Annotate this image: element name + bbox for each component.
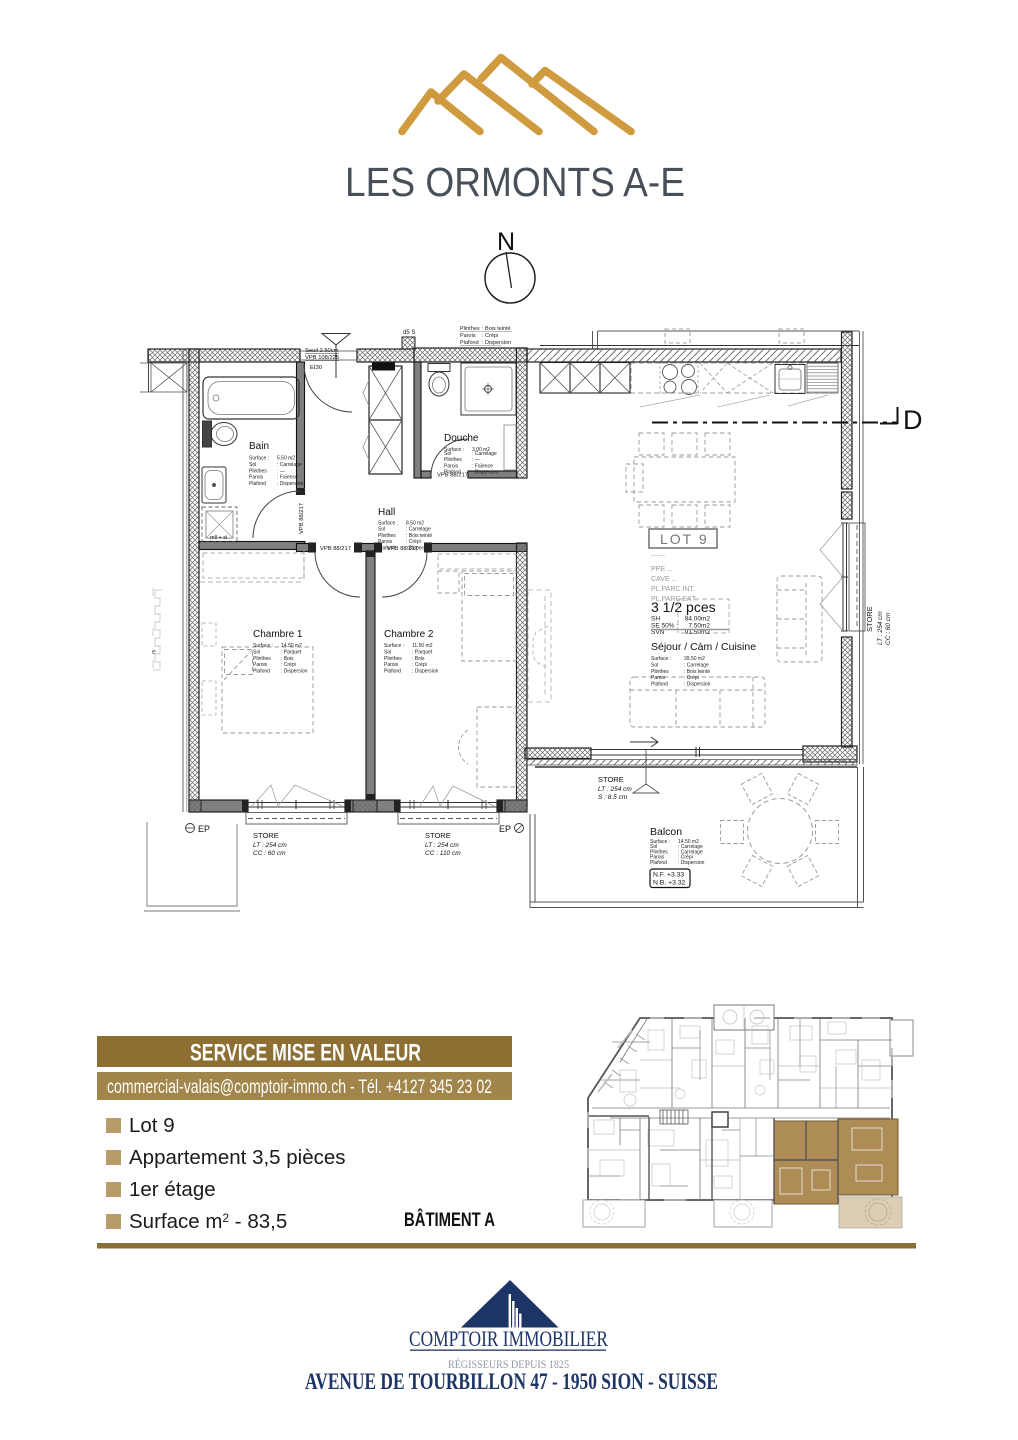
svg-text:Plinthes: Plinthes (253, 656, 271, 662)
svg-text:Plafond: Plafond (384, 669, 401, 675)
svg-text:N.F. +3.33: N.F. +3.33 (653, 872, 684, 879)
svg-text:Plinthes: Plinthes (460, 326, 480, 332)
svg-text:: Bois teinté: : Bois teinté (482, 326, 511, 332)
svg-text:Plinthes: Plinthes (378, 533, 396, 539)
svg-text:Surface :: Surface : (384, 643, 404, 649)
svg-text:: Bois: : Bois (281, 656, 294, 662)
svg-text:commercial-valais@comptoir-imm: commercial-valais@comptoir-immo.ch - Tél… (107, 1076, 492, 1098)
svg-text:COMPTOIR IMMOBILIER: COMPTOIR IMMOBILIER (409, 1326, 608, 1351)
svg-text:: Carrelage: : Carrelage (277, 462, 302, 468)
svg-text:LT : 254 cm: LT : 254 cm (598, 786, 632, 793)
svg-text:e: e (152, 649, 156, 656)
svg-text:Surface :: Surface : (378, 521, 398, 527)
svg-text:Parois: Parois (384, 662, 399, 668)
svg-text:: Carrelage: : Carrelage (406, 527, 431, 533)
svg-text:: Bois: : Bois (412, 656, 425, 662)
svg-text:PL.PARC.INT.: PL.PARC.INT. (651, 586, 695, 593)
svg-text:: Parquet: : Parquet (412, 649, 433, 655)
svg-text:Parois: Parois (651, 675, 666, 681)
svg-text:: Crépi: : Crépi (281, 662, 296, 668)
svg-text:N: N (497, 228, 515, 256)
svg-text:EP: EP (198, 824, 210, 834)
svg-text:: Crépi: : Crépi (412, 662, 427, 668)
svg-text:Sol: Sol (384, 649, 391, 655)
svg-text:Chambre 2: Chambre 2 (384, 629, 434, 640)
svg-text:1er étage: 1er étage (129, 1178, 216, 1201)
svg-text:: —: : — (277, 468, 285, 474)
svg-text:Douche: Douche (444, 433, 479, 444)
svg-text:: Dispersion: : Dispersion (277, 481, 304, 487)
svg-text:: Dispersion: : Dispersion (472, 469, 499, 475)
svg-text:------: ------ (651, 553, 666, 560)
svg-text:LT : 254 cm: LT : 254 cm (425, 842, 459, 849)
svg-text:: —: : — (472, 457, 480, 463)
svg-text:: Crépi: : Crépi (406, 539, 421, 545)
svg-text:STORE: STORE (425, 831, 451, 840)
svg-text:LT : 254 cm: LT : 254 cm (253, 842, 287, 849)
svg-text:Plafond: Plafond (650, 860, 667, 866)
svg-text:CC : 60 cm: CC : 60 cm (253, 850, 286, 857)
svg-text:8.50 m2: 8.50 m2 (406, 521, 424, 527)
svg-text:N.B. +3.32: N.B. +3.32 (653, 880, 686, 887)
svg-text:: Dispersion: : Dispersion (684, 682, 711, 688)
svg-text:BÂTIMENT A: BÂTIMENT A (404, 1209, 495, 1231)
svg-text:5.50 m2: 5.50 m2 (277, 456, 295, 462)
svg-text:Plinthes: Plinthes (249, 468, 267, 474)
svg-text:Sol: Sol (253, 649, 260, 655)
svg-text:Plafond: Plafond (253, 669, 270, 675)
svg-text:EP: EP (499, 824, 511, 834)
svg-text:Parois: Parois (253, 662, 268, 668)
svg-text:: Crépi: : Crépi (684, 675, 699, 681)
svg-text:Plinthes: Plinthes (444, 457, 462, 463)
svg-text:Parois: Parois (460, 333, 476, 339)
svg-text:Plafond: Plafond (460, 340, 479, 346)
svg-text:: Dispersion: : Dispersion (482, 340, 511, 346)
svg-text:Parois: Parois (249, 475, 264, 481)
svg-text:LOT 9: LOT 9 (660, 531, 709, 547)
svg-text:LT : 254 cm: LT : 254 cm (877, 611, 884, 645)
svg-text:Parois: Parois (444, 463, 459, 469)
svg-text:: Dispersion: : Dispersion (281, 669, 308, 675)
svg-text:mll + sl: mll + sl (210, 535, 227, 541)
svg-text:Sol: Sol (444, 451, 451, 457)
svg-text:STORE: STORE (598, 775, 624, 784)
svg-text:Séjour / Càm / Cuisine: Séjour / Càm / Cuisine (651, 641, 756, 653)
svg-text:Plafond: Plafond (651, 682, 668, 688)
svg-text:Surface :: Surface : (249, 456, 269, 462)
svg-text:: Crépi: : Crépi (482, 333, 498, 339)
svg-text:Plafond: Plafond (249, 481, 266, 487)
svg-text:14.50 m2: 14.50 m2 (281, 643, 302, 649)
svg-text:: Dispersion: : Dispersion (412, 669, 439, 675)
svg-text:: Dispersion: : Dispersion (678, 860, 705, 866)
svg-text:Bain: Bain (249, 441, 269, 452)
svg-text:Lot 9: Lot 9 (129, 1114, 175, 1137)
svg-text:LES ORMONTS A-E: LES ORMONTS A-E (345, 159, 685, 205)
svg-text:Sol: Sol (249, 462, 256, 468)
svg-text:Seuil 2.50cm: Seuil 2.50cm (305, 348, 339, 354)
svg-text:S : 8.5 cm: S : 8.5 cm (598, 794, 628, 801)
svg-text:39.50 m2: 39.50 m2 (684, 656, 705, 662)
svg-text:Parois: Parois (378, 539, 393, 545)
svg-text:STORE: STORE (865, 606, 874, 632)
svg-text:Appartement 3,5 pièces: Appartement 3,5 pièces (129, 1146, 346, 1169)
svg-text:11.50 m2: 11.50 m2 (412, 643, 433, 649)
svg-text:VPB 88/217: VPB 88/217 (387, 546, 418, 552)
svg-text:SERVICE MISE EN VALEUR: SERVICE MISE EN VALEUR (190, 1040, 421, 1067)
svg-text:Surface :: Surface : (253, 643, 273, 649)
svg-text:: Carrelage: : Carrelage (684, 662, 709, 668)
svg-text:Plinthes: Plinthes (384, 656, 402, 662)
svg-text:Sol: Sol (378, 527, 385, 533)
svg-text:CAVE ...: CAVE ... (651, 576, 677, 583)
svg-text:PPE ...: PPE ... (651, 566, 673, 573)
svg-text:EI30: EI30 (310, 365, 322, 371)
svg-text:STORE: STORE (253, 831, 279, 840)
svg-text:AVENUE DE TOURBILLON 47 - 1950: AVENUE DE TOURBILLON 47 - 1950 SION - SU… (305, 1369, 718, 1394)
svg-text:3 1/2 pces: 3 1/2 pces (651, 599, 716, 615)
svg-text:: Bois teinté: : Bois teinté (684, 669, 710, 675)
svg-text:D: D (903, 405, 923, 435)
svg-text:Chambre 1: Chambre 1 (253, 629, 303, 640)
svg-text:: Bois teinté: : Bois teinté (406, 533, 432, 539)
svg-text:VPB 108/225: VPB 108/225 (305, 355, 339, 361)
svg-text:Surface :: Surface : (651, 656, 671, 662)
svg-text:VPB 88/217: VPB 88/217 (320, 546, 351, 552)
svg-text:: Carrelage: : Carrelage (472, 451, 497, 457)
svg-text:: Parquet: : Parquet (281, 649, 302, 655)
svg-text:CC : 110 cm: CC : 110 cm (425, 850, 461, 857)
svg-text:Plinthes: Plinthes (651, 669, 669, 675)
svg-text:: Faïence: : Faïence (277, 475, 298, 481)
svg-text:Balcon: Balcon (650, 826, 682, 838)
svg-text:d5 S: d5 S (403, 330, 415, 336)
svg-text:CC : 60 cm: CC : 60 cm (885, 612, 892, 645)
svg-text:Surface m2 - 83,5: Surface m2 - 83,5 (129, 1210, 287, 1233)
svg-text:: Faïence: : Faïence (472, 463, 493, 469)
svg-text:Hall: Hall (378, 507, 395, 518)
svg-text:VPB 88/217: VPB 88/217 (299, 503, 305, 534)
svg-text:Sol: Sol (651, 662, 658, 668)
svg-text:VPB 88/217: VPB 88/217 (437, 473, 468, 479)
